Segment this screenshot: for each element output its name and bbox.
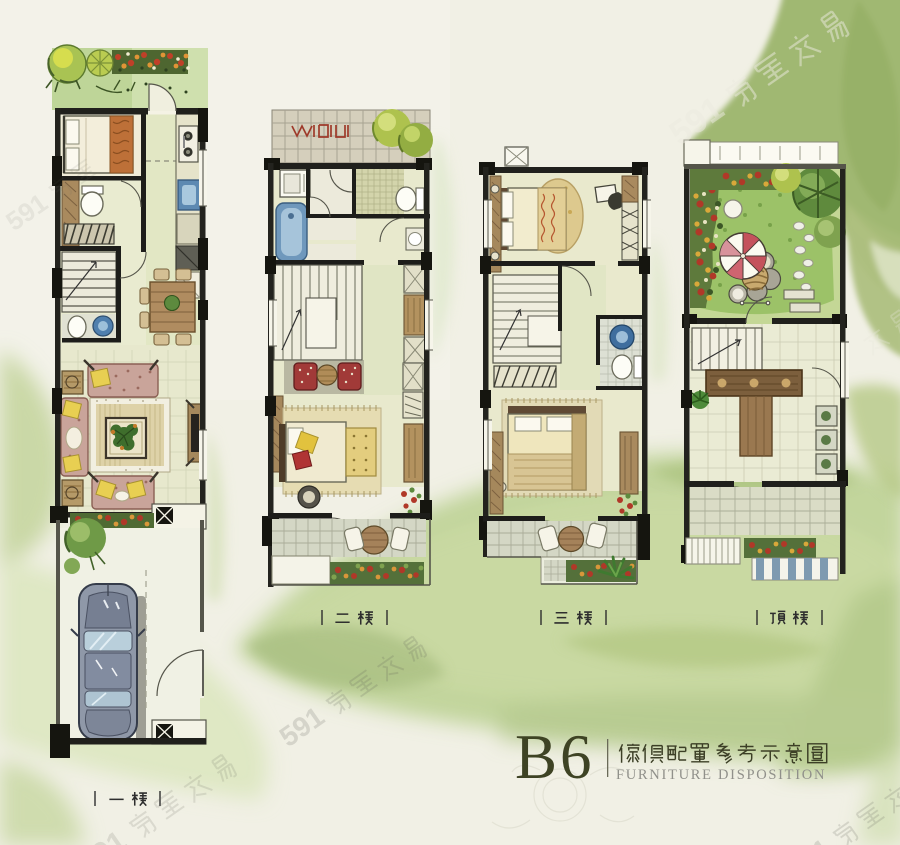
- svg-text:FURNITURE DISPOSITION: FURNITURE DISPOSITION: [616, 767, 826, 783]
- svg-text:B6: B6: [515, 722, 595, 792]
